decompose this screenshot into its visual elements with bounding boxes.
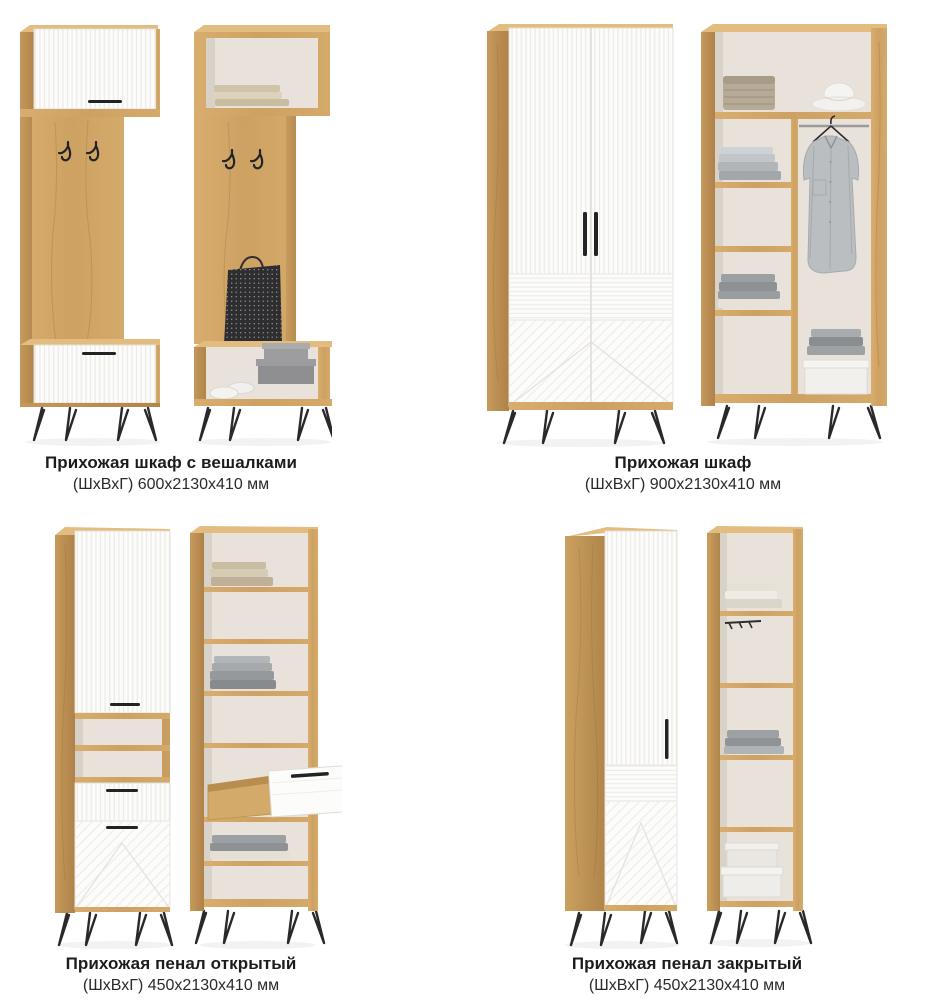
- folded-textile: [210, 562, 273, 586]
- product-card-wardrobe: Прихожая шкаф (ШхВхГ) 900х2130х410 мм: [473, 12, 893, 494]
- product-dimensions: (ШхВхГ) 450х2130х410 мм: [572, 976, 802, 996]
- storage-boxes: [721, 843, 783, 897]
- folded-clothes: [718, 147, 781, 180]
- product-caption: Прихожая пенал открытый (ШхВхГ) 450х2130…: [66, 954, 297, 995]
- open-view: [707, 526, 811, 947]
- product-dimensions: (ШхВхГ) 900х2130х410 мм: [585, 475, 781, 495]
- closed-view: [20, 25, 161, 446]
- handle: [594, 212, 598, 256]
- handle: [110, 703, 140, 706]
- product-title: Прихожая пенал открытый: [66, 954, 297, 975]
- towel-box: [803, 329, 869, 394]
- product-card-hall-hooks: Прихожая шкаф с вешалками (ШхВхГ) 600х21…: [10, 12, 332, 494]
- product-caption: Прихожая пенал закрытый (ШхВхГ) 450х2130…: [572, 954, 802, 995]
- open-view: [701, 24, 887, 446]
- folded-clothes: [724, 730, 784, 754]
- product-image-pencil-open: [20, 513, 342, 949]
- shopping-bag: [224, 257, 282, 344]
- product-title: Прихожая пенал закрытый: [572, 954, 802, 975]
- folded-clothes: [718, 274, 780, 308]
- open-view: [194, 25, 332, 446]
- product-caption: Прихожая шкаф (ШхВхГ) 900х2130х410 мм: [585, 453, 781, 494]
- product-card-pencil-open: Прихожая пенал открытый (ШхВхГ) 450х2130…: [20, 513, 342, 995]
- product-image-pencil-closed: [527, 513, 847, 949]
- product-title: Прихожая шкаф: [585, 453, 781, 474]
- closed-view: [487, 24, 673, 447]
- product-card-pencil-closed: Прихожая пенал закрытый (ШхВхГ) 450х2130…: [527, 513, 847, 995]
- product-image-hall-hooks: [10, 12, 332, 448]
- handle: [88, 100, 122, 103]
- folded-clothes: [210, 835, 290, 859]
- product-dimensions: (ШхВхГ) 600х2130х410 мм: [45, 475, 297, 495]
- product-image-wardrobe: [473, 12, 893, 448]
- folded-textile: [212, 85, 289, 106]
- handle: [82, 352, 116, 355]
- closed-view: [564, 527, 680, 949]
- handle: [665, 719, 669, 759]
- handle: [106, 826, 138, 829]
- handle: [583, 212, 587, 256]
- folded-textile: [725, 583, 782, 608]
- folded-clothes: [210, 656, 276, 689]
- product-dimensions: (ШхВхГ) 450х2130х410 мм: [66, 976, 297, 996]
- open-view: [190, 526, 342, 949]
- product-title: Прихожая шкаф с вешалками: [45, 453, 297, 474]
- storage-boxes: [256, 343, 316, 384]
- wicker-basket: [723, 76, 775, 110]
- handle: [106, 789, 138, 792]
- product-caption: Прихожая шкаф с вешалками (ШхВхГ) 600х21…: [45, 453, 297, 494]
- closed-view: [55, 527, 173, 949]
